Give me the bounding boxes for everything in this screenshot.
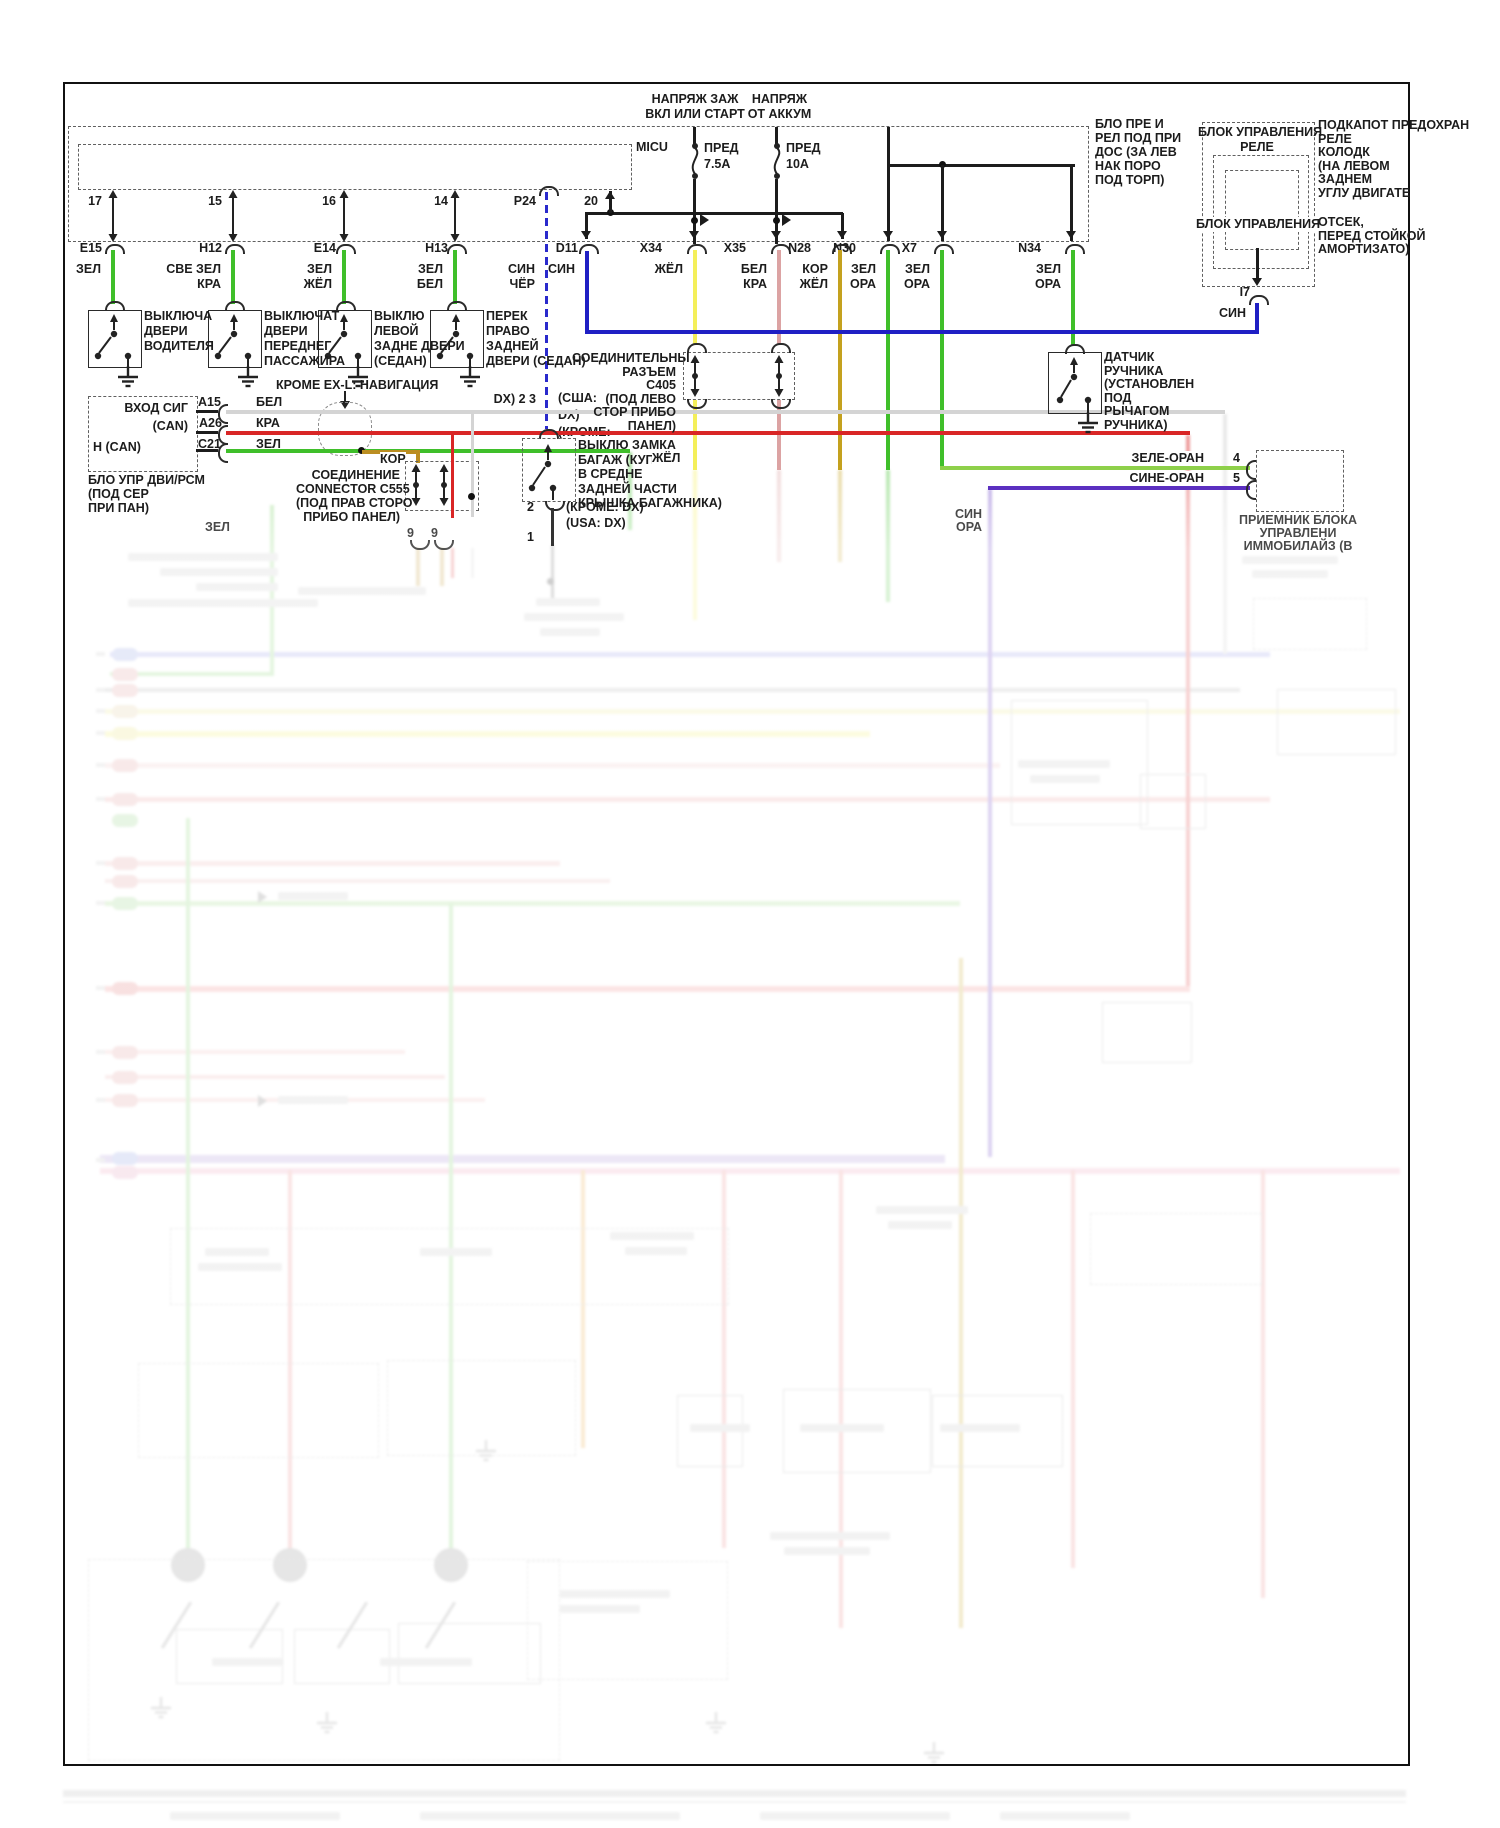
wire-color-label: СИНОРА — [942, 508, 982, 534]
arrow-up-icon — [605, 186, 615, 199]
relay-control-module-inner-box — [1225, 170, 1299, 250]
wire-color-label: ЗЕЛ — [205, 520, 230, 535]
ecm-hcan-label: H (CAN) — [93, 440, 141, 455]
ecm-caption: БЛО УПР ДВИ/РСМ(ПОД СЕРПРИ ПАН) — [88, 473, 205, 515]
connector-bracket-icon — [771, 343, 791, 353]
ground-icon — [235, 366, 261, 390]
double-arrow-icon — [449, 188, 461, 244]
immobilizer-caption: ПРИЕМНИК БЛОКАУПРАВЛЕНИИММОБИЛАЙЗ (В — [1228, 514, 1368, 553]
connector-id: D11 — [532, 241, 578, 256]
arrow-down-icon — [1066, 231, 1076, 244]
junction-dot — [773, 217, 780, 224]
wire-blue — [585, 330, 1259, 334]
wire-green — [342, 250, 346, 304]
relay-box-inner-label: БЛОК УПРАВЛЕНИЯ — [1196, 217, 1320, 232]
switch-icon — [208, 310, 260, 366]
connector-id: H13 — [402, 241, 448, 256]
door-switch-label: ВЫКЛЮЧАДВЕРИВОДИТЕЛЯ — [144, 309, 214, 354]
fuse2-name: ПРЕД — [786, 141, 821, 156]
arrow-down-icon — [689, 231, 699, 244]
door-switch-label: ПЕРЕКПРАВОЗАДНЕЙДВЕРИ (СЕДАН) — [486, 309, 586, 369]
connector-id: E14 — [290, 241, 336, 256]
switch-icon — [88, 310, 140, 366]
ground-icon — [1075, 412, 1101, 436]
fuse1-name: ПРЕД — [704, 141, 739, 156]
immobilizer-receiver-box — [1256, 450, 1344, 512]
connector-id: X34 — [616, 241, 662, 256]
wire-color-label: БЕЛ — [256, 395, 282, 410]
connector-bracket-icon — [1246, 460, 1256, 480]
connector-bracket-icon — [1246, 480, 1256, 500]
micu-pin-14: 14 — [406, 194, 448, 209]
wire-black — [196, 449, 218, 452]
junction-dot — [468, 493, 475, 500]
ecm-pin-a15: A15 — [198, 395, 221, 410]
ground-icon — [115, 366, 141, 390]
ecm-signal-label: ВХОД СИГ — [96, 401, 188, 416]
nav-variant-note: КРОМЕ EX-L: НАВИГАЦИЯ — [276, 378, 438, 393]
wire-black — [887, 164, 1075, 167]
wire-green — [940, 250, 944, 468]
wire-color-label: ЗЕЛЕ-ОРАН — [1124, 451, 1204, 466]
double-arrow-icon — [227, 188, 239, 244]
connector-bracket-icon — [934, 244, 954, 254]
arrow-right-icon — [700, 214, 715, 226]
relay-box-note-2: ОТСЕК,ПЕРЕД СТОЙКОЙАМОРТИЗАТО) — [1318, 216, 1425, 257]
switch-icon — [522, 438, 574, 500]
wire-brown-yellow — [838, 250, 842, 470]
ghost-text — [1000, 1812, 1130, 1820]
wire-black — [196, 410, 218, 413]
arrow-right-icon — [782, 214, 797, 226]
wire-color-label: ЗЕЛБЕЛ — [361, 262, 443, 291]
trunk-pin-1: 1 — [522, 530, 534, 545]
c555-pin: 9 — [426, 526, 438, 541]
wire-red — [451, 434, 454, 518]
wire-green — [231, 250, 235, 304]
wire-color-label: ЗЕЛОРА — [979, 262, 1061, 291]
ghost-text — [170, 1812, 340, 1820]
c555-pin: 9 — [402, 526, 414, 541]
wire-purple — [988, 486, 1250, 490]
wire-black — [585, 212, 843, 215]
connector-id: E15 — [56, 241, 102, 256]
wire-green-orange — [940, 466, 1250, 470]
connector-bracket-icon — [218, 425, 228, 445]
wire-black — [941, 165, 944, 241]
immobilizer-pin-4: 4 — [1226, 451, 1240, 466]
connector-bracket-icon — [539, 186, 559, 196]
fuse2-rating: 10А — [786, 157, 809, 172]
connector-id: X35 — [700, 241, 746, 256]
double-arrow-icon — [689, 354, 701, 398]
wire-green — [886, 250, 890, 470]
fuse1-rating: 7.5А — [704, 157, 730, 172]
wire-blue — [1255, 303, 1259, 332]
micu-label: MICU — [636, 140, 668, 155]
connector-id: N30 — [810, 241, 856, 256]
wire-green — [111, 250, 115, 304]
wire-green — [453, 250, 457, 304]
wire-color-label: ЖЁЛ — [652, 451, 680, 466]
ground-icon — [457, 366, 483, 390]
wire-black — [1256, 248, 1259, 280]
handbrake-caption: ДАТЧИКРУЧНИКА(УСТАНОВЛЕНПОДРЫЧАГОМРУЧНИК… — [1104, 351, 1194, 432]
double-arrow-icon — [338, 188, 350, 244]
wire-color-label: СИН — [1204, 306, 1246, 321]
wire-color-label: ЖЁЛ — [601, 262, 683, 277]
arrow-down-icon — [937, 231, 947, 244]
connector-bracket-icon — [225, 244, 245, 254]
micu-pin-20: 20 — [556, 194, 598, 209]
trunk-note-2: (КРОМЕ: DX) — [566, 500, 644, 515]
wire-black — [551, 508, 554, 546]
wire-color-label: КРА — [256, 416, 280, 431]
wire-color-label: КОР — [380, 452, 406, 467]
double-arrow-icon — [773, 354, 785, 398]
page-footer-bar — [63, 1790, 1406, 1797]
trunk-pin-2: 2 — [522, 500, 534, 515]
connector-bracket-icon — [1249, 295, 1269, 305]
double-arrow-icon — [107, 188, 119, 244]
underdash-box-label: БЛО ПРЕ ИРЕЛ ПОД ПРИДОС (ЗА ЛЕВНАК ПОРОП… — [1095, 117, 1181, 187]
double-arrow-icon — [438, 463, 450, 507]
wire-color-label: СВЕ ЗЕЛКРА — [139, 262, 221, 291]
wire-red — [226, 431, 1190, 435]
switch-icon — [1048, 352, 1100, 412]
c405-caption: СОЕДИНИТЕЛЬНЫРАЗЪЕМС405(ПОД ЛЕВОСТОР ПРИ… — [572, 352, 676, 433]
micu-pin-15: 15 — [180, 194, 222, 209]
battery-voltage-label: НАПРЯЖОТ АККУМ — [737, 92, 822, 121]
fuse-icon — [770, 141, 784, 181]
fuse-icon — [688, 141, 702, 181]
wire-color-label: СИН — [493, 262, 575, 277]
p24-note-left: DX) 2 3 — [470, 392, 536, 407]
door-switch-label: ВЫКЛЮЧАТДВЕРИПЕРЕДНЕГПАССАЖИРА — [264, 309, 345, 369]
connector-bracket-icon — [687, 343, 707, 353]
connector-bracket-icon — [218, 404, 228, 424]
wire-white — [471, 413, 474, 517]
connector-id: N28 — [765, 241, 811, 256]
connector-id: N34 — [995, 241, 1041, 256]
connector-id: H12 — [176, 241, 222, 256]
immobilizer-pin-5: 5 — [1226, 471, 1240, 486]
connector-bracket-icon — [1065, 244, 1085, 254]
connector-bracket-icon — [105, 244, 125, 254]
connector-id: X7 — [871, 241, 917, 256]
wire-black — [196, 431, 218, 434]
connector-bracket-icon — [579, 244, 599, 254]
trunk-note-1: (USA: DX) — [566, 516, 626, 531]
relay-box-note-1: ПОДКАПОТ ПРЕДОХРАНРЕЛЕКОЛОДК(НА ЛЕВОМЗАД… — [1318, 119, 1469, 200]
connector-bracket-icon — [336, 244, 356, 254]
ghost-text — [760, 1812, 950, 1820]
arrow-down-icon — [1252, 278, 1262, 291]
micu-pin-16: 16 — [294, 194, 336, 209]
connector-bracket-icon — [447, 244, 467, 254]
micu-box — [78, 144, 632, 190]
wire-color-label: ЗЕЛ — [19, 262, 101, 277]
ecm-can-label: (CAN) — [96, 419, 188, 434]
c555-caption: СОЕДИНЕНИЕCONNECTOR C555(ПОД ПРАВ СТОРОП… — [296, 468, 400, 524]
micu-pin-17: 17 — [60, 194, 102, 209]
page-footer-bar — [63, 1801, 1406, 1803]
connector-bracket-icon — [218, 443, 228, 463]
wiring-diagram-page: НАПРЯЖ ЗАЖВКЛ ИЛИ СТАРТ НАПРЯЖОТ АККУМ M… — [0, 0, 1500, 1828]
junction-dot — [691, 217, 698, 224]
micu-pin-p24: P24 — [494, 194, 536, 209]
relay-pin-i7: I7 — [1224, 285, 1250, 300]
wire-color-label: СИНЕ-ОРАН — [1124, 471, 1204, 486]
door-switch-label: ВЫКЛЮЛЕВОЙЗАДНЕ ДВЕРИ(СЕДАН) — [374, 309, 465, 369]
relay-box-title: БЛОК УПРАВЛЕНИЯРЕЛЕ — [1198, 125, 1316, 154]
arrow-down-icon — [581, 231, 591, 244]
wire-color-label: ЗЕЛЖЁЛ — [250, 262, 332, 291]
ghost-text — [420, 1812, 680, 1820]
wire-black — [887, 127, 890, 241]
wire-black — [1070, 165, 1073, 241]
